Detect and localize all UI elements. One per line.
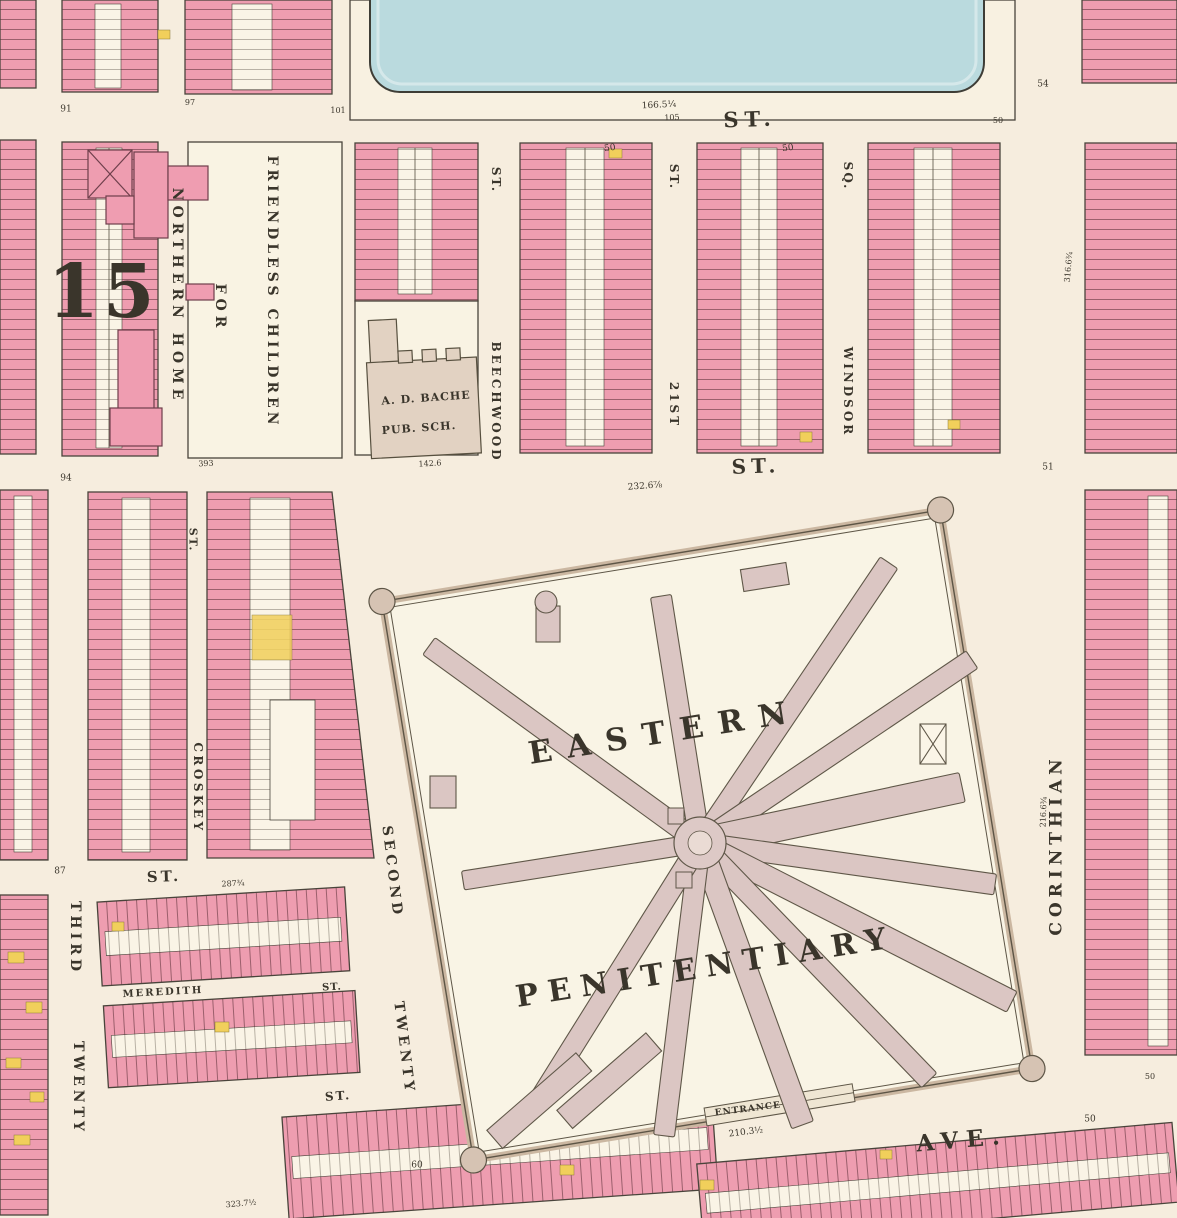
yard-building (430, 776, 456, 808)
yard-building-x (920, 724, 946, 764)
home-building-wing (134, 152, 168, 238)
block-yards (14, 496, 32, 852)
block-yards (1148, 496, 1168, 1046)
map-graphics (0, 0, 1177, 1218)
city-blocks-right (1085, 490, 1177, 1055)
block (1082, 0, 1177, 83)
school-main (367, 357, 482, 459)
home-building-south (118, 330, 154, 412)
block-yards (95, 4, 121, 88)
reservoir-block (350, 0, 1015, 120)
atlas-map-sheet: 15ST.166.5¼10550549110197ST.BEECHWOODST.… (0, 0, 1177, 1218)
hub-annex (668, 808, 684, 824)
school-battlement (422, 349, 437, 362)
hub-rotunda-core (688, 831, 712, 855)
yard-building-blob (535, 591, 560, 642)
block (0, 0, 36, 88)
school-battlement (446, 348, 461, 361)
block-vacant (270, 700, 315, 820)
school-battlement (398, 350, 413, 363)
block-yards (122, 498, 150, 852)
block (0, 140, 36, 454)
home-building-south (110, 408, 162, 446)
home-building-wing (168, 166, 208, 200)
home-building-wing (106, 196, 134, 224)
block (1085, 143, 1177, 453)
home-outbuilding (186, 284, 214, 300)
block-yards (232, 4, 272, 90)
block (0, 895, 48, 1215)
reservoir-water (370, 0, 984, 92)
hub-annex (676, 872, 692, 888)
